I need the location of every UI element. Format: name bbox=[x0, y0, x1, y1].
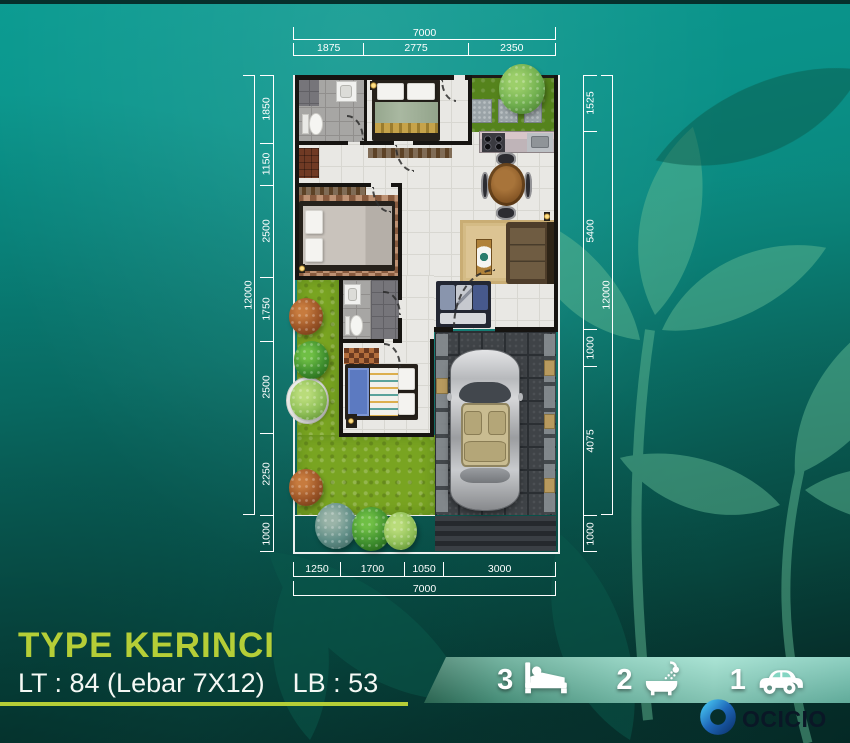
wall bbox=[430, 339, 434, 437]
tan-tile bbox=[436, 378, 447, 394]
dim-right-overall: 12000 bbox=[601, 75, 613, 515]
dim-segment-label: 1875 bbox=[317, 42, 340, 55]
tan-tile bbox=[544, 414, 555, 430]
dim-segment: 2500 bbox=[260, 341, 273, 433]
dim-segment: 1050 bbox=[404, 562, 443, 577]
dim-segment-label: 2350 bbox=[500, 42, 523, 55]
dim-segment-label: 3000 bbox=[488, 563, 511, 576]
tank bbox=[302, 114, 309, 134]
wall bbox=[398, 280, 401, 300]
cush-brown bbox=[510, 228, 545, 280]
wall bbox=[339, 276, 343, 436]
lamp bbox=[299, 264, 306, 273]
dim-segment: 1250 bbox=[293, 562, 340, 577]
car-seat bbox=[464, 411, 482, 435]
wall bbox=[295, 276, 402, 280]
tree bbox=[384, 512, 417, 550]
dim-segment-label: 2500 bbox=[261, 376, 273, 399]
tree bbox=[315, 503, 357, 548]
dim-segment-label: 2775 bbox=[404, 42, 427, 55]
gate bbox=[454, 75, 465, 80]
dim-segment: 1000 bbox=[260, 515, 273, 552]
stone bbox=[471, 99, 492, 123]
car-icon bbox=[756, 661, 803, 700]
gold-band bbox=[375, 123, 438, 133]
fixture bbox=[336, 81, 358, 102]
bowl bbox=[309, 113, 323, 135]
pillow bbox=[305, 238, 323, 262]
dim-left-overall: 12000 bbox=[243, 75, 255, 515]
car-wind bbox=[459, 382, 511, 403]
car-rear bbox=[460, 468, 510, 482]
dim-segment: 2350 bbox=[468, 43, 556, 56]
sofa-back bbox=[547, 222, 554, 284]
pillow bbox=[398, 368, 415, 390]
dim-segment-label: 2500 bbox=[261, 220, 273, 243]
wall bbox=[365, 141, 394, 145]
dim-segment-label: 5400 bbox=[585, 219, 597, 242]
dim-segment: 1750 bbox=[260, 277, 273, 341]
dim-segment-label: 1700 bbox=[361, 563, 384, 576]
wall bbox=[413, 141, 469, 145]
tree bbox=[289, 469, 323, 506]
pcol bbox=[436, 334, 447, 513]
wall bbox=[398, 183, 401, 276]
wall bbox=[364, 75, 367, 144]
dim-segment-label: 1000 bbox=[585, 336, 597, 359]
dim-segment-label: 1000 bbox=[585, 522, 597, 545]
tan-tile bbox=[544, 360, 555, 376]
flyer-background: 7000 187527752350 1250170010503000 7000 … bbox=[0, 0, 850, 743]
pillow bbox=[305, 210, 323, 234]
feature-bathrooms: 2 bbox=[616, 659, 682, 701]
dim-top-segments: 187527752350 bbox=[293, 43, 556, 56]
dim-segment: 2250 bbox=[260, 433, 273, 516]
car bbox=[451, 350, 519, 510]
logo-text: OCICIO bbox=[742, 706, 827, 733]
dim-segment-label: 1525 bbox=[585, 92, 597, 115]
page-title: TYPE KERINCI bbox=[18, 626, 275, 666]
dim-segment: 2775 bbox=[363, 43, 467, 56]
wall bbox=[434, 327, 453, 331]
dim-segment-label: 1000 bbox=[261, 522, 273, 545]
dim-segment: 1000 bbox=[584, 515, 597, 552]
dim-segment: 1850 bbox=[260, 75, 273, 143]
dim-segment: 4075 bbox=[584, 366, 597, 516]
tree bbox=[290, 380, 327, 420]
land-area-text: LT : 84 (Lebar 7X12) bbox=[18, 668, 265, 698]
logo-circle-icon bbox=[699, 698, 737, 741]
lamp bbox=[544, 212, 551, 221]
dim-segment: 2500 bbox=[260, 185, 273, 277]
dim-segment-label: 2250 bbox=[261, 463, 273, 486]
dim-segment-label: 4075 bbox=[585, 429, 597, 452]
dim-segment: 1875 bbox=[293, 43, 363, 56]
title-details: LT : 84 (Lebar 7X12)LB : 53 bbox=[18, 668, 378, 699]
car-mir bbox=[447, 393, 452, 401]
blue-matt bbox=[348, 368, 369, 416]
dim-segment-label: 1250 bbox=[305, 563, 328, 576]
wall bbox=[398, 318, 401, 340]
dim-segment: 1150 bbox=[260, 143, 273, 185]
driveway bbox=[435, 516, 557, 551]
bedroom-count: 3 bbox=[497, 664, 513, 697]
pillow bbox=[377, 83, 405, 100]
cushion bbox=[440, 285, 455, 310]
dim-segment-label: 1750 bbox=[261, 298, 273, 321]
wall bbox=[295, 75, 299, 280]
table bbox=[488, 163, 525, 206]
dim-segment: 5400 bbox=[584, 131, 597, 329]
logo: OCICIO bbox=[699, 698, 827, 741]
sink2u bbox=[527, 133, 552, 152]
accent-underline bbox=[0, 702, 408, 706]
carport-count: 1 bbox=[730, 664, 746, 697]
feature-carport: 1 bbox=[730, 661, 803, 700]
wall bbox=[393, 339, 402, 343]
dim-right-segments: 15255400100040751000 bbox=[583, 75, 597, 552]
wall bbox=[339, 433, 434, 437]
fixture bbox=[344, 284, 361, 305]
tree bbox=[294, 341, 329, 379]
dim-segment: 1000 bbox=[584, 329, 597, 366]
wall bbox=[339, 339, 384, 343]
tree bbox=[289, 298, 323, 335]
tan-tile bbox=[544, 478, 555, 494]
dim-bottom-overall: 7000 bbox=[293, 581, 556, 596]
dim-segment: 1700 bbox=[340, 562, 404, 577]
bathroom-count: 2 bbox=[616, 664, 632, 697]
tile-dark bbox=[297, 79, 319, 106]
wall bbox=[295, 183, 371, 187]
lamp bbox=[370, 81, 377, 90]
lamp bbox=[348, 417, 354, 426]
pillow bbox=[398, 393, 415, 415]
wall bbox=[468, 75, 472, 145]
dim-segment-label: 1050 bbox=[412, 563, 435, 576]
floor-plan bbox=[293, 75, 560, 554]
dim-segment-label: 1150 bbox=[261, 153, 273, 176]
chair bbox=[496, 206, 516, 220]
wall bbox=[295, 75, 472, 80]
blanket-stripe bbox=[370, 368, 398, 416]
checker bbox=[344, 348, 378, 363]
wall bbox=[554, 75, 558, 332]
feature-bedrooms: 3 bbox=[497, 661, 569, 699]
wall bbox=[295, 141, 348, 145]
car-seat bbox=[488, 411, 506, 435]
dim-bottom-segments: 1250170010503000 bbox=[293, 562, 556, 577]
car-seat bbox=[464, 441, 506, 462]
dim-segment: 3000 bbox=[443, 562, 556, 577]
dim-segment-label: 1850 bbox=[261, 98, 273, 121]
stove bbox=[482, 133, 505, 152]
top-dark-strip bbox=[0, 0, 850, 4]
cabinet bbox=[297, 148, 319, 179]
pillow bbox=[407, 83, 435, 100]
tree bbox=[499, 64, 545, 115]
building-area-text: LB : 53 bbox=[293, 668, 379, 698]
dim-segment: 1525 bbox=[584, 75, 597, 131]
bed-icon bbox=[523, 661, 569, 699]
dim-top-overall: 7000 bbox=[293, 27, 556, 40]
feature-band: 3 2 bbox=[424, 657, 850, 703]
bath-icon bbox=[643, 659, 683, 701]
dim-left-segments: 1850115025001750250022501000 bbox=[260, 75, 274, 552]
wall bbox=[495, 327, 554, 331]
